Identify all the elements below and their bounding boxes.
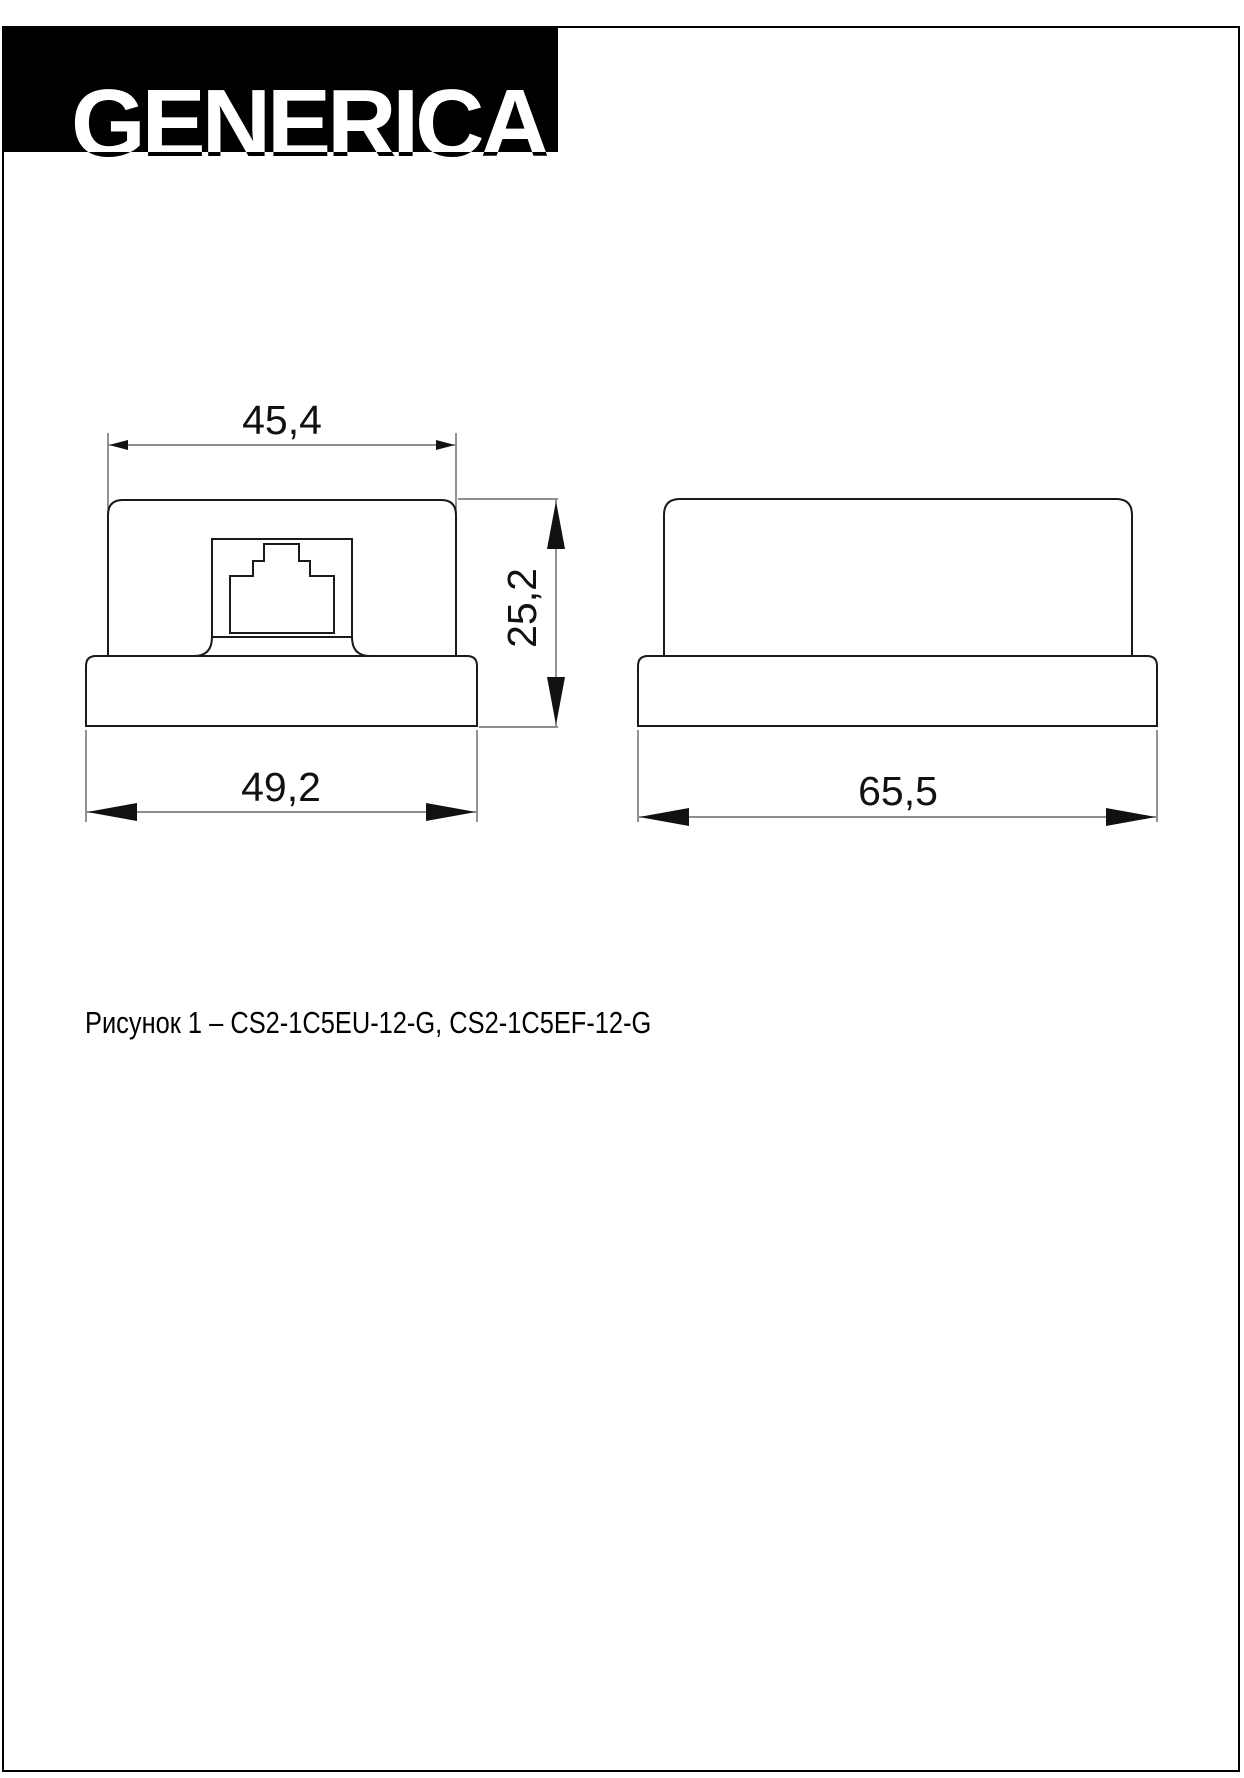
front-right-fillet [352, 637, 370, 656]
dimension-side-base-width: 65,5 [638, 730, 1157, 826]
front-left-fillet [194, 637, 212, 656]
arrowhead-left [109, 440, 128, 450]
front-view: 45,4 25,2 49,2 [86, 397, 565, 822]
arrowhead-right [1106, 808, 1156, 826]
arrowhead-right [436, 440, 455, 450]
technical-drawing: 45,4 25,2 49,2 [0, 0, 1244, 1778]
side-body-outline [664, 499, 1132, 656]
dimension-label: 49,2 [241, 764, 321, 810]
side-view: 65,5 [638, 499, 1157, 826]
side-base-outline [638, 656, 1157, 726]
arrowhead-up [547, 501, 565, 549]
dimension-label: 45,4 [242, 397, 322, 443]
dimension-label: 65,5 [858, 768, 938, 814]
rj45-jack-opening [230, 544, 334, 633]
dimension-front-height: 25,2 [458, 499, 565, 727]
arrowhead-left [639, 808, 689, 826]
rj45-bezel [212, 539, 352, 637]
figure-caption: Рисунок 1 – CS2-1C5EU-12-G, CS2-1C5EF-12… [85, 1007, 776, 1038]
dimension-label: 25,2 [499, 568, 545, 648]
arrowhead-down [547, 677, 565, 725]
front-base-outline [86, 656, 477, 726]
dimension-front-base-width: 49,2 [86, 730, 477, 822]
dimension-front-top-width: 45,4 [108, 397, 456, 657]
figure-caption-text: Рисунок 1 – CS2-1C5EU-12-G, CS2-1C5EF-12… [85, 1007, 651, 1038]
arrowhead-right [426, 803, 476, 821]
arrowhead-left [87, 803, 137, 821]
